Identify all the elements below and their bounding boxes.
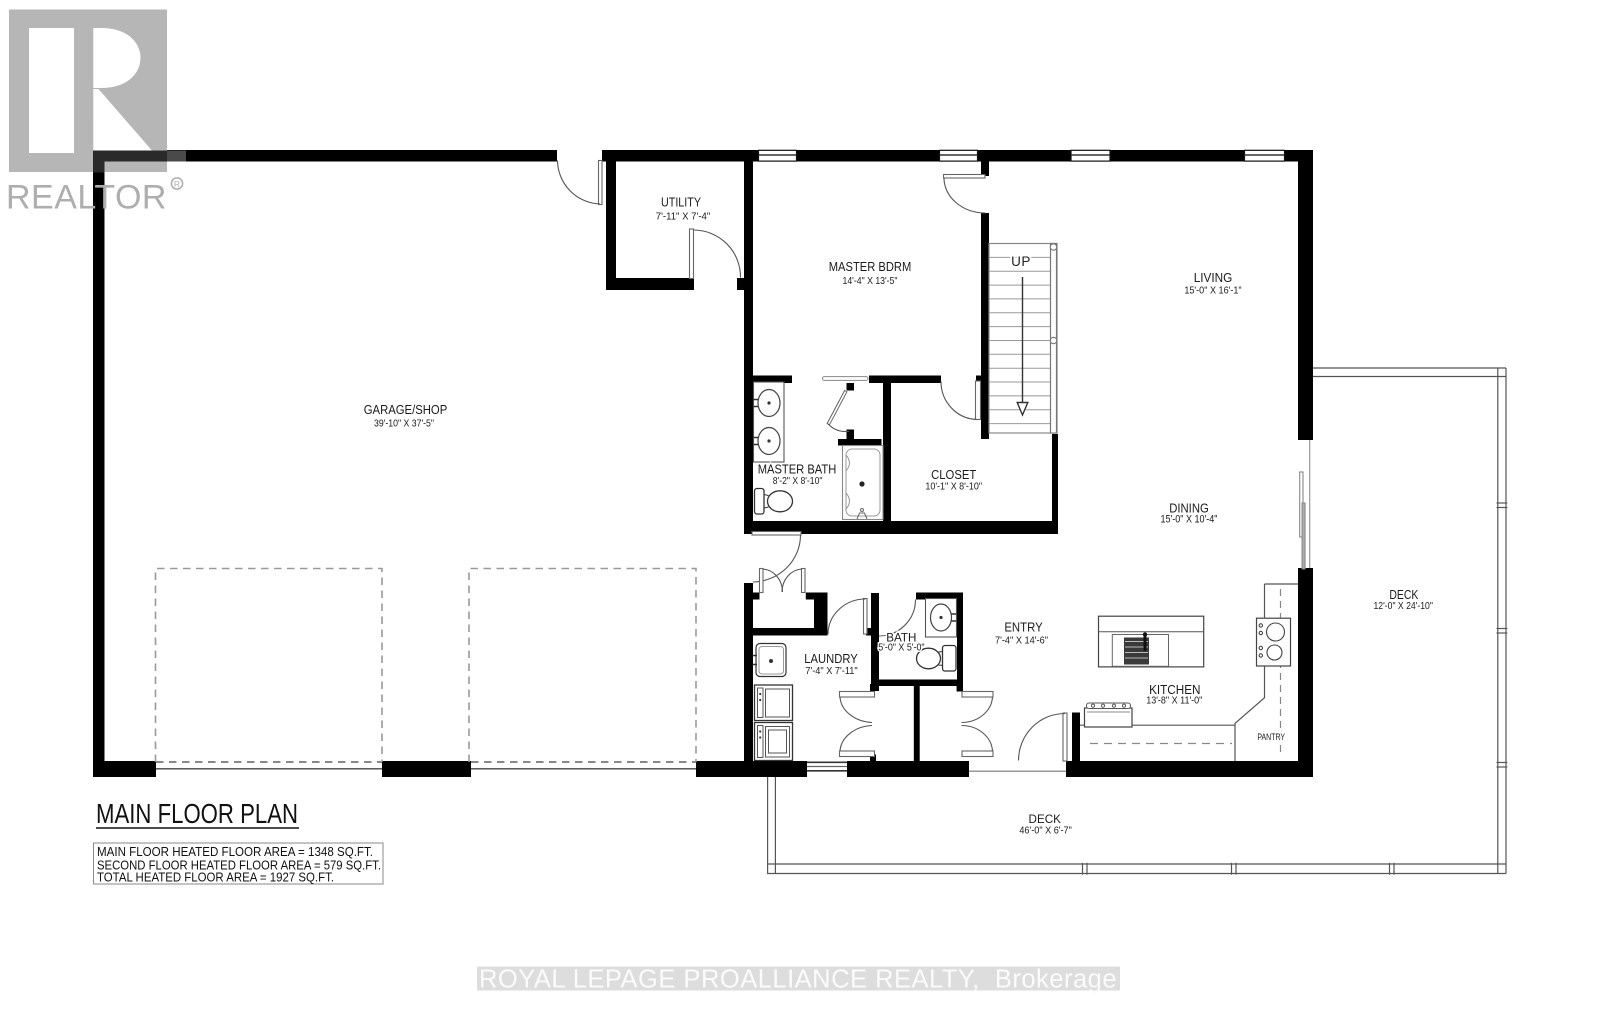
svg-text:LIVING: LIVING	[1194, 270, 1233, 285]
svg-text:ENTRY: ENTRY	[1004, 620, 1042, 635]
svg-text:15'-0" X 16'-1": 15'-0" X 16'-1"	[1184, 285, 1242, 297]
svg-text:MAIN FLOOR PLAN: MAIN FLOOR PLAN	[96, 798, 298, 829]
svg-text:R: R	[174, 179, 180, 189]
svg-text:REALTOR: REALTOR	[6, 179, 167, 217]
svg-text:15'-0" X 10'-4": 15'-0" X 10'-4"	[1161, 514, 1218, 526]
svg-text:UP: UP	[1011, 254, 1031, 269]
svg-text:13'-8" X 11'-0": 13'-8" X 11'-0"	[1146, 695, 1202, 707]
svg-text:7'-11" X 7'-4": 7'-11" X 7'-4"	[656, 211, 711, 223]
svg-text:7'-4" X 7'-11": 7'-4" X 7'-11"	[805, 665, 858, 677]
svg-text:10'-1" X 8'-10": 10'-1" X 8'-10"	[925, 481, 982, 493]
svg-text:7'-4" X 14'-6": 7'-4" X 14'-6"	[995, 635, 1048, 647]
svg-text:MASTER BDRM: MASTER BDRM	[829, 260, 912, 274]
svg-text:8'-2" X 8'-10": 8'-2" X 8'-10"	[773, 475, 823, 487]
svg-text:ROYAL LEPAGE PROALLIANCE REALT: ROYAL LEPAGE PROALLIANCE REALTY, Brokera…	[479, 966, 1117, 994]
svg-text:PANTRY: PANTRY	[1257, 732, 1285, 743]
svg-text:DECK: DECK	[1029, 813, 1062, 826]
svg-text:14'-4" X 13'-5": 14'-4" X 13'-5"	[843, 275, 898, 287]
svg-text:LAUNDRY: LAUNDRY	[804, 652, 858, 666]
svg-text:5'-0" X 5'-0": 5'-0" X 5'-0"	[878, 643, 925, 654]
svg-text:TOTAL HEATED FLOOR AREA = 1927: TOTAL HEATED FLOOR AREA = 1927 SQ.FT.	[97, 870, 334, 885]
svg-text:46'-0" X 6'-7": 46'-0" X 6'-7"	[1019, 825, 1072, 836]
svg-text:39'-10" X 37'-5": 39'-10" X 37'-5"	[374, 418, 434, 430]
svg-text:12'-0" X 24'-10": 12'-0" X 24'-10"	[1374, 600, 1434, 612]
svg-text:UTILITY: UTILITY	[661, 196, 702, 210]
svg-text:GARAGE/SHOP: GARAGE/SHOP	[364, 402, 448, 417]
